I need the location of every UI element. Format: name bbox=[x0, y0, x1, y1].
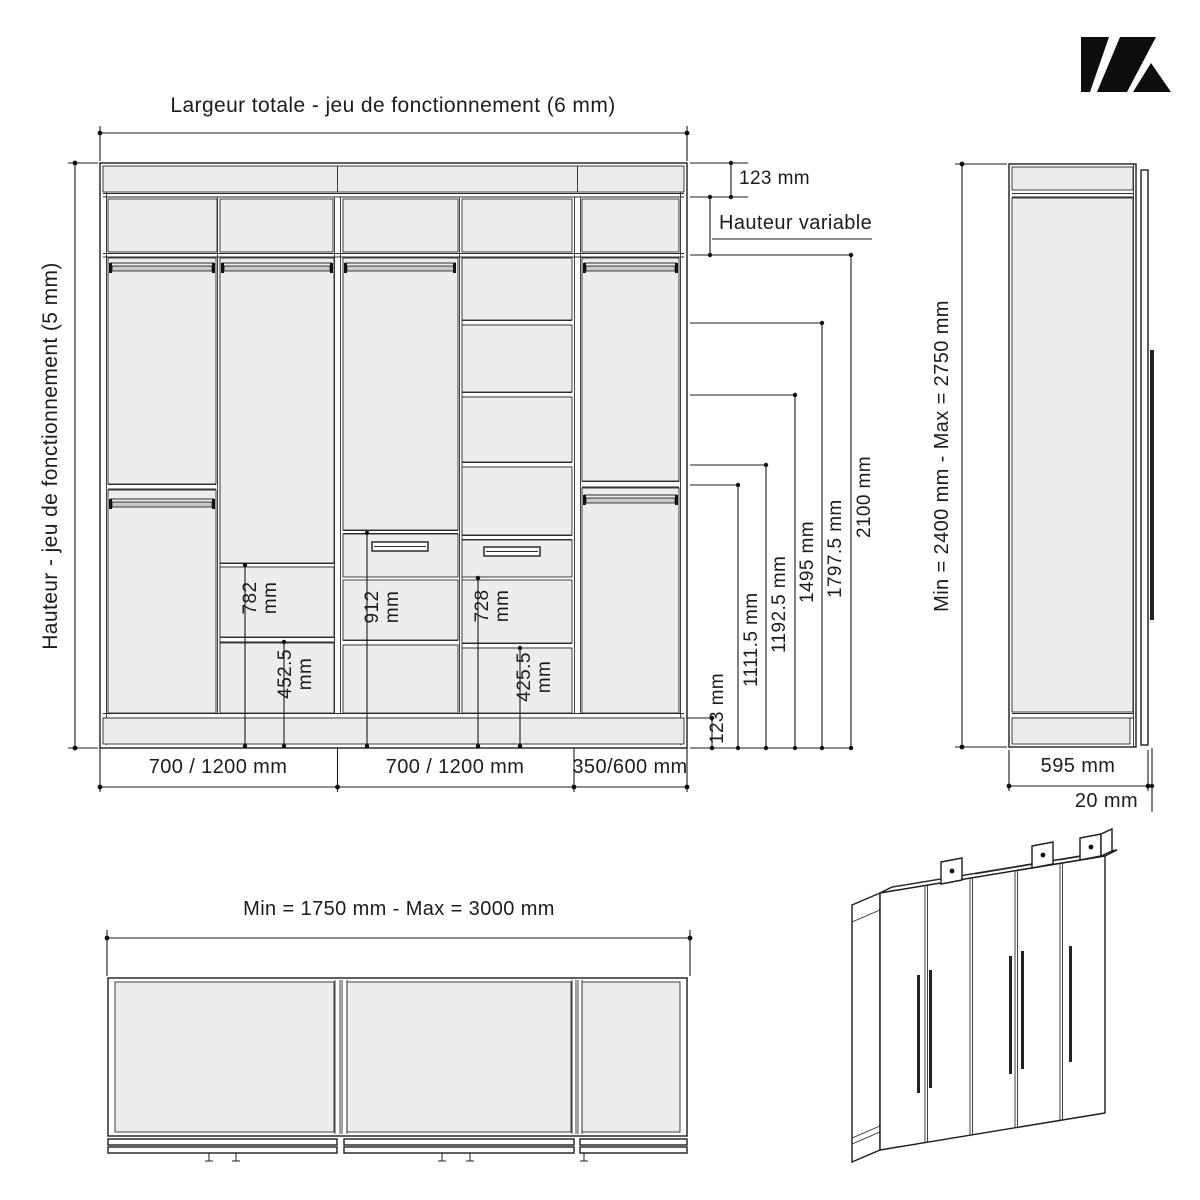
side-door-thickness-label: 20 mm bbox=[1075, 790, 1138, 812]
width-dim-label: 700 / 1200 mm bbox=[386, 756, 525, 778]
drawer-front bbox=[343, 534, 458, 577]
door-handle bbox=[929, 970, 932, 1088]
plinth-dim-label: 123 mm bbox=[707, 673, 728, 744]
svg-text:425.5: 425.5 bbox=[514, 652, 535, 702]
width-dim-label: 350/600 mm bbox=[572, 756, 687, 778]
front-plinth bbox=[103, 714, 684, 745]
svg-text:mm: mm bbox=[295, 658, 316, 690]
svg-text:mm: mm bbox=[492, 590, 513, 622]
front-col3-hang-drawer bbox=[343, 258, 458, 713]
front-col2-hang-shelves bbox=[220, 258, 334, 713]
interior-dim-label: 912 mm bbox=[362, 591, 403, 624]
side-height-range-label: Min = 2400 mm - Max = 2750 mm bbox=[931, 300, 953, 612]
side-door-panel bbox=[1141, 170, 1148, 745]
top-fixing-bracket bbox=[941, 858, 962, 884]
interior-dim-label: 782 mm bbox=[240, 582, 281, 615]
drawer-front bbox=[462, 540, 572, 577]
hauteur-variable-label: Hauteur variable bbox=[719, 212, 872, 234]
front-filler-dim-label: 123 mm bbox=[739, 168, 810, 189]
svg-text:452.5: 452.5 bbox=[275, 649, 296, 699]
door-handle bbox=[1069, 946, 1072, 1062]
side-depth-label: 595 mm bbox=[1041, 755, 1116, 777]
front-view bbox=[100, 163, 687, 748]
height-dim-label: 1495 mm bbox=[797, 521, 818, 603]
svg-text:mm: mm bbox=[534, 661, 555, 693]
plan-view: Min = 1750 mm - Max = 3000 mm bbox=[105, 898, 693, 1161]
plan-width-range-label: Min = 1750 mm - Max = 3000 mm bbox=[243, 898, 555, 920]
svg-text:912: 912 bbox=[362, 591, 383, 624]
wardrobe-left-side bbox=[852, 893, 880, 1162]
interior-dim-label: 728 mm bbox=[472, 590, 513, 623]
front-left-height-label: Hauteur - jeu de fonctionnement (5 mm) bbox=[39, 262, 62, 650]
front-top-width-label: Largeur totale - jeu de fonctionnement (… bbox=[170, 94, 615, 117]
height-dim-label: 1797.5 mm bbox=[825, 499, 846, 598]
side-door-handle bbox=[1150, 350, 1154, 620]
svg-text:mm: mm bbox=[260, 582, 281, 614]
door-handle bbox=[1009, 956, 1012, 1074]
top-fixing-bracket bbox=[1032, 842, 1053, 868]
wardrobe-technical-drawing: Largeur totale - jeu de fonctionnement (… bbox=[0, 0, 1200, 1200]
front-top-filler bbox=[103, 166, 684, 197]
door-handle bbox=[917, 975, 920, 1093]
width-dim-label: 700 / 1200 mm bbox=[149, 756, 288, 778]
height-dim-label: 1192.5 mm bbox=[769, 556, 790, 653]
svg-text:mm: mm bbox=[382, 591, 403, 623]
height-dim-label: 1111.5 mm bbox=[741, 593, 762, 687]
door-handle bbox=[1021, 951, 1024, 1069]
svg-text:728: 728 bbox=[472, 590, 493, 623]
front-top-compartments bbox=[103, 199, 684, 257]
height-dim-label: 2100 mm bbox=[854, 456, 875, 538]
svg-text:782: 782 bbox=[240, 582, 261, 615]
